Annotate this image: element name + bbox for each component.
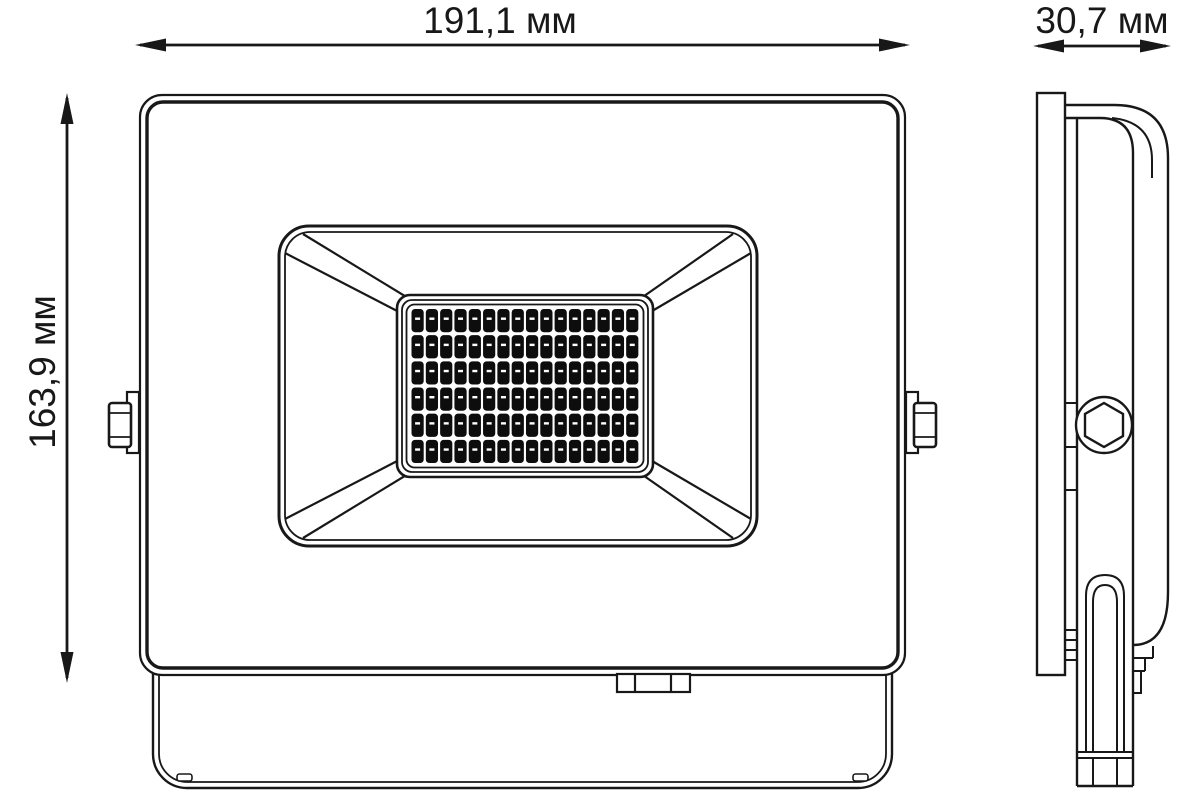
led-chip-dash xyxy=(587,448,592,450)
bracket-foot-right xyxy=(853,774,868,781)
housing-bottom-steps xyxy=(1133,646,1153,693)
led-chip-dash xyxy=(587,344,592,346)
led-chip-dash xyxy=(587,396,592,398)
led-chip xyxy=(569,309,581,332)
led-chip xyxy=(412,388,424,411)
led-chip xyxy=(454,414,466,437)
led-chip xyxy=(512,309,524,332)
heatsink-fins xyxy=(1065,630,1077,660)
led-chip-dash xyxy=(501,448,506,450)
led-chip-dash xyxy=(558,448,563,450)
led-chip xyxy=(540,309,552,332)
height-dimension-label: 163,9 мм xyxy=(22,295,63,449)
led-chip xyxy=(540,361,552,384)
led-chip xyxy=(426,388,438,411)
led-chip-dash xyxy=(458,344,463,346)
led-chip xyxy=(583,440,595,463)
led-chip-dash xyxy=(487,344,492,346)
led-chip-dash xyxy=(630,448,635,450)
led-chip xyxy=(440,414,452,437)
led-chip xyxy=(583,414,595,437)
led-chip xyxy=(426,361,438,384)
led-chip xyxy=(526,440,538,463)
led-chip-dash xyxy=(415,318,420,320)
led-chip xyxy=(540,440,552,463)
led-chip xyxy=(555,440,567,463)
led-chip xyxy=(440,361,452,384)
led-chip-dash xyxy=(530,448,535,450)
led-chip-dash xyxy=(444,318,449,320)
arrow-left-icon xyxy=(135,39,166,52)
led-chip-dash xyxy=(458,422,463,424)
led-chip-dash xyxy=(472,422,477,424)
arrow-left-icon xyxy=(1033,40,1064,53)
led-chip xyxy=(512,414,524,437)
led-chip-dash xyxy=(429,396,434,398)
arrow-down-icon xyxy=(61,652,74,683)
led-chip xyxy=(469,414,481,437)
led-chip xyxy=(483,414,495,437)
led-chip xyxy=(526,361,538,384)
led-chip-dash xyxy=(544,370,549,372)
led-chip-dash xyxy=(615,318,620,320)
led-chip-dash xyxy=(444,422,449,424)
led-chip-dash xyxy=(544,448,549,450)
led-chip-dash xyxy=(472,344,477,346)
cable-gland xyxy=(617,674,690,692)
led-chip-dash xyxy=(615,396,620,398)
led-chip-dash xyxy=(501,370,506,372)
led-chip xyxy=(454,361,466,384)
led-chip-dash xyxy=(415,396,420,398)
led-chip-dash xyxy=(415,448,420,450)
led-chip-dash xyxy=(429,370,434,372)
led-chip-dash xyxy=(444,370,449,372)
led-chip xyxy=(555,309,567,332)
led-chip xyxy=(454,335,466,358)
led-chip xyxy=(412,361,424,384)
led-chip xyxy=(626,309,638,332)
arrow-right-icon xyxy=(1140,40,1171,53)
led-chip xyxy=(497,335,509,358)
led-chip-dash xyxy=(458,318,463,320)
dimension-depth: 30,7 мм xyxy=(1033,0,1171,53)
led-chip-dash xyxy=(458,396,463,398)
led-chip-dash xyxy=(487,448,492,450)
led-chip-dash xyxy=(558,344,563,346)
led-chip-dash xyxy=(544,422,549,424)
led-chip-dash xyxy=(444,396,449,398)
led-chip xyxy=(512,440,524,463)
side-view xyxy=(1037,93,1168,786)
led-chip xyxy=(440,440,452,463)
led-chip-dash xyxy=(558,422,563,424)
led-chip xyxy=(497,361,509,384)
led-chip xyxy=(598,335,610,358)
led-chip-dash xyxy=(429,448,434,450)
led-chip xyxy=(512,335,524,358)
led-chip-dash xyxy=(601,396,606,398)
led-chip xyxy=(555,335,567,358)
led-chip xyxy=(598,361,610,384)
pivot-clip-left xyxy=(109,392,139,453)
led-chip xyxy=(612,361,624,384)
led-chip-dash xyxy=(544,396,549,398)
led-chip-dash xyxy=(630,422,635,424)
arrow-right-icon xyxy=(879,39,910,52)
led-chip xyxy=(440,309,452,332)
led-chip xyxy=(412,414,424,437)
led-chip-dash xyxy=(487,318,492,320)
led-chip xyxy=(454,309,466,332)
glass-slab xyxy=(1037,93,1065,675)
led-chip-dash xyxy=(573,396,578,398)
led-chip xyxy=(412,309,424,332)
led-chip xyxy=(626,361,638,384)
led-chip-dash xyxy=(472,318,477,320)
led-chip xyxy=(569,414,581,437)
led-chip-dash xyxy=(487,422,492,424)
led-chip xyxy=(497,309,509,332)
pivot-clip-right xyxy=(906,392,936,453)
led-chip-dash xyxy=(487,370,492,372)
led-chip-dash xyxy=(587,318,592,320)
led-chip-dash xyxy=(458,448,463,450)
clip-bolt xyxy=(914,403,936,447)
led-chip-dash xyxy=(573,448,578,450)
arrow-up-icon xyxy=(61,93,74,124)
led-chip-dash xyxy=(429,422,434,424)
led-chip-dash xyxy=(472,370,477,372)
led-chip xyxy=(598,309,610,332)
technical-drawing: 191,1 мм 30,7 мм 163,9 мм xyxy=(0,0,1200,800)
led-chip xyxy=(526,414,538,437)
led-chip-dash xyxy=(558,318,563,320)
led-chip-dash xyxy=(630,370,635,372)
led-chip xyxy=(526,388,538,411)
led-chip-dash xyxy=(444,344,449,346)
led-chip-dash xyxy=(558,396,563,398)
led-chip-dash xyxy=(429,318,434,320)
led-chip xyxy=(469,361,481,384)
led-chip xyxy=(526,309,538,332)
led-chip-dash xyxy=(530,370,535,372)
led-chip xyxy=(483,361,495,384)
led-chip xyxy=(412,440,424,463)
led-chip-dash xyxy=(544,318,549,320)
led-chip xyxy=(412,335,424,358)
led-chip-dash xyxy=(573,344,578,346)
bracket-slot-inner xyxy=(1093,585,1117,752)
led-chip xyxy=(626,335,638,358)
led-chip-dash xyxy=(615,422,620,424)
led-chip-dash xyxy=(615,344,620,346)
led-chip xyxy=(583,335,595,358)
led-chip-dash xyxy=(515,396,520,398)
led-chip-dash xyxy=(573,370,578,372)
led-chip-dash xyxy=(587,422,592,424)
bracket-slot-outer xyxy=(1086,575,1124,752)
led-chip xyxy=(426,440,438,463)
led-chip-dash xyxy=(573,318,578,320)
housing-back-outer xyxy=(1065,105,1168,645)
led-chip xyxy=(583,309,595,332)
led-chip-dash xyxy=(587,370,592,372)
led-chip-dash xyxy=(558,370,563,372)
led-chip xyxy=(512,388,524,411)
led-chip xyxy=(555,388,567,411)
depth-dimension-label: 30,7 мм xyxy=(1035,0,1168,41)
led-chip-dash xyxy=(415,344,420,346)
led-chip-dash xyxy=(601,318,606,320)
led-chip xyxy=(555,414,567,437)
led-chip xyxy=(426,335,438,358)
led-chip-dash xyxy=(615,370,620,372)
led-chip-dash xyxy=(515,422,520,424)
led-chip xyxy=(540,414,552,437)
led-chip xyxy=(526,335,538,358)
led-chip xyxy=(483,335,495,358)
led-chip xyxy=(626,414,638,437)
led-chip xyxy=(483,309,495,332)
led-chip-dash xyxy=(573,422,578,424)
led-chip xyxy=(612,388,624,411)
dimension-width: 191,1 мм xyxy=(135,0,910,52)
led-chip xyxy=(569,335,581,358)
led-chip-dash xyxy=(515,370,520,372)
led-chip xyxy=(598,414,610,437)
led-chip-dash xyxy=(601,344,606,346)
led-chip xyxy=(454,388,466,411)
led-chip-dash xyxy=(515,448,520,450)
led-chip xyxy=(469,440,481,463)
led-chip-dash xyxy=(501,396,506,398)
led-chip-dash xyxy=(472,448,477,450)
led-chip-dash xyxy=(458,370,463,372)
led-chip-dash xyxy=(501,344,506,346)
led-chip-dash xyxy=(515,344,520,346)
led-chip xyxy=(497,440,509,463)
led-chip xyxy=(612,414,624,437)
led-chip xyxy=(483,440,495,463)
led-chip xyxy=(583,361,595,384)
clip-bolt xyxy=(109,403,131,447)
dimension-height: 163,9 мм xyxy=(22,93,74,683)
led-chip xyxy=(569,440,581,463)
led-chip-dash xyxy=(472,396,477,398)
led-chip-dash xyxy=(601,448,606,450)
led-chip xyxy=(598,440,610,463)
led-chip-dash xyxy=(487,396,492,398)
led-chip xyxy=(483,388,495,411)
led-chip-dash xyxy=(530,344,535,346)
led-chip xyxy=(440,388,452,411)
led-chip xyxy=(583,388,595,411)
led-chip xyxy=(440,335,452,358)
led-chip xyxy=(540,388,552,411)
bracket-foot-left xyxy=(177,774,192,781)
led-chip xyxy=(555,361,567,384)
led-chip-dash xyxy=(530,396,535,398)
led-chip xyxy=(497,388,509,411)
led-chip xyxy=(469,335,481,358)
led-chip xyxy=(569,388,581,411)
led-chip-dash xyxy=(530,318,535,320)
drawing-canvas: 191,1 мм 30,7 мм 163,9 мм xyxy=(0,0,1200,800)
led-chip xyxy=(540,335,552,358)
led-chip-dash xyxy=(515,318,520,320)
led-chip-dash xyxy=(444,448,449,450)
led-chip xyxy=(512,361,524,384)
led-chip-dash xyxy=(630,318,635,320)
led-chip xyxy=(612,335,624,358)
led-chip-dash xyxy=(630,344,635,346)
led-chip xyxy=(454,440,466,463)
led-chip xyxy=(497,414,509,437)
led-chip xyxy=(569,361,581,384)
width-dimension-label: 191,1 мм xyxy=(423,0,577,41)
led-chip xyxy=(626,440,638,463)
led-chip-dash xyxy=(530,422,535,424)
led-chip xyxy=(612,440,624,463)
led-chip-dash xyxy=(429,344,434,346)
led-chip xyxy=(426,414,438,437)
led-chip-dash xyxy=(415,370,420,372)
led-chip-dash xyxy=(630,396,635,398)
led-chip xyxy=(598,388,610,411)
front-view xyxy=(109,95,936,788)
led-chip xyxy=(469,388,481,411)
led-chip-dash xyxy=(501,422,506,424)
led-chip-dash xyxy=(601,422,606,424)
led-chip-dash xyxy=(615,448,620,450)
led-chip-dash xyxy=(501,318,506,320)
led-chip xyxy=(612,309,624,332)
led-chip xyxy=(469,309,481,332)
led-chip-dash xyxy=(601,370,606,372)
led-chip xyxy=(626,388,638,411)
led-chip-dash xyxy=(544,344,549,346)
led-chip xyxy=(426,309,438,332)
pivot-bolt-hex-icon xyxy=(1085,403,1123,447)
led-chip-dash xyxy=(415,422,420,424)
